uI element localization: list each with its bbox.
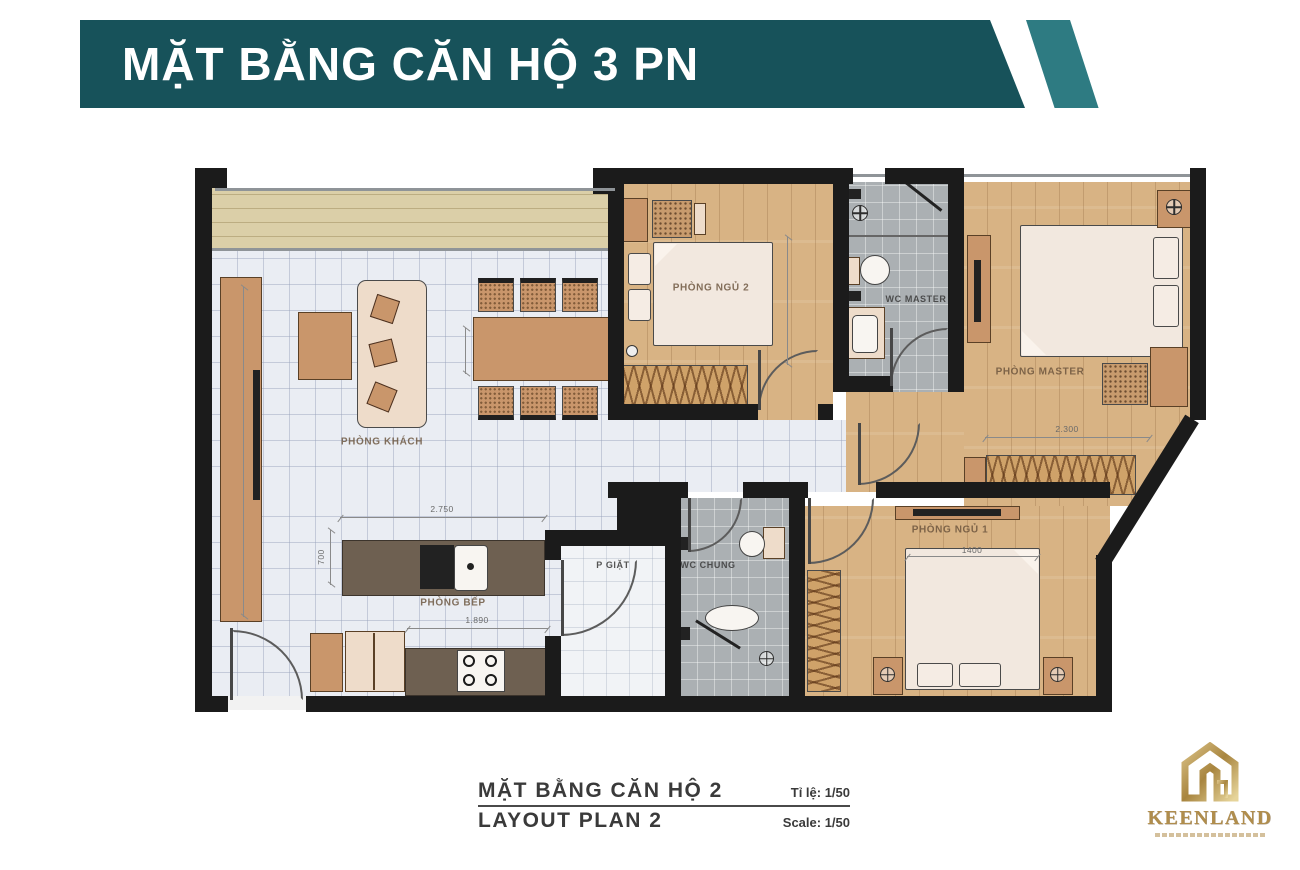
entry-door-leaf bbox=[230, 628, 233, 700]
bedroom2-wardrobe bbox=[622, 365, 748, 407]
master-door-leaf bbox=[858, 423, 861, 485]
floor-drain-icon bbox=[852, 205, 868, 221]
wall bbox=[833, 168, 849, 392]
dimension-line bbox=[243, 287, 244, 617]
wc-master-door-leaf bbox=[890, 328, 893, 386]
headboard-panel bbox=[694, 203, 706, 235]
burner bbox=[485, 655, 497, 667]
lamp bbox=[626, 345, 638, 357]
washbasin bbox=[852, 315, 878, 353]
room-label-kitchen: PHÒNG BẾP bbox=[420, 598, 485, 609]
laundry-door-leaf bbox=[561, 560, 564, 636]
room-label-laundry: P GIẶT bbox=[596, 560, 629, 570]
blanket-fold bbox=[1014, 550, 1038, 574]
dimension-line bbox=[330, 530, 331, 585]
wall bbox=[789, 482, 805, 696]
balcony-floor bbox=[212, 188, 615, 250]
room-label-bedroom1: PHÒNG NGỦ 1 bbox=[912, 525, 989, 536]
wall bbox=[665, 482, 681, 696]
wall bbox=[1190, 168, 1206, 420]
wall bbox=[561, 530, 665, 546]
toilet-tank bbox=[763, 527, 785, 559]
wall bbox=[608, 404, 758, 420]
kitchen-cabinet bbox=[310, 633, 343, 692]
wall bbox=[608, 168, 624, 420]
wall bbox=[545, 530, 561, 560]
side-table bbox=[1150, 347, 1188, 407]
wall-fixture bbox=[849, 189, 861, 199]
caption-row-en: LAYOUT PLAN 2 Scale: 1/50 bbox=[478, 807, 850, 833]
wall bbox=[545, 636, 561, 712]
room-label-wc-shared: WC CHUNG bbox=[680, 560, 735, 570]
refrigerator-door-line bbox=[373, 633, 375, 690]
wall bbox=[195, 696, 228, 712]
lamp-icon bbox=[1050, 667, 1065, 682]
wall bbox=[948, 168, 964, 392]
blanket-fold bbox=[655, 244, 677, 266]
dimension-line bbox=[340, 517, 545, 518]
toilet-bowl bbox=[860, 255, 890, 285]
dining-table bbox=[473, 317, 610, 381]
dimension-value: 700 bbox=[316, 549, 326, 564]
kitchen-sink-drainer bbox=[420, 545, 454, 589]
dimension-line bbox=[407, 628, 548, 629]
dimension-line bbox=[787, 237, 788, 365]
balcony-sliding-door bbox=[212, 248, 608, 251]
burner bbox=[485, 674, 497, 686]
dining-chair bbox=[562, 278, 598, 312]
pouf bbox=[1102, 363, 1148, 405]
storage-ottoman bbox=[652, 200, 692, 238]
window bbox=[964, 174, 1190, 177]
burner bbox=[463, 655, 475, 667]
caption-scale-vi: Tỉ lệ: 1/50 bbox=[791, 785, 850, 800]
page: MẶT BẰNG CĂN HỘ 3 PN bbox=[0, 0, 1300, 870]
brand-name: KEENLAND bbox=[1142, 807, 1278, 830]
dimension-line bbox=[465, 328, 466, 374]
wall bbox=[876, 482, 1110, 498]
pillow bbox=[959, 663, 1001, 687]
refrigerator bbox=[345, 631, 405, 692]
dining-chair bbox=[562, 386, 598, 420]
wall bbox=[624, 168, 853, 184]
shower-partition bbox=[849, 235, 948, 237]
blanket-fold bbox=[1022, 331, 1046, 355]
burner bbox=[463, 674, 475, 686]
bedroom1-door-leaf bbox=[808, 498, 811, 564]
dimension-value: 2.750 bbox=[430, 504, 453, 514]
dining-chair bbox=[478, 278, 514, 312]
pillow bbox=[628, 289, 651, 321]
coffee-table bbox=[298, 312, 352, 380]
wc-shared-door-leaf bbox=[688, 498, 691, 552]
dimension-value: 2.300 bbox=[1055, 424, 1078, 434]
master-tv-screen bbox=[974, 260, 981, 322]
pillow bbox=[917, 663, 953, 687]
house-icon bbox=[1179, 789, 1241, 806]
room-label-master: PHÒNG MASTER bbox=[996, 367, 1085, 378]
room-label-living: PHÒNG KHÁCH bbox=[341, 437, 423, 448]
lamp-icon bbox=[880, 667, 895, 682]
sink-drain bbox=[467, 563, 474, 570]
dimension-value: 1400 bbox=[962, 545, 983, 555]
dimension-line bbox=[907, 556, 1038, 557]
dining-chair bbox=[478, 386, 514, 420]
tv-screen bbox=[253, 370, 260, 500]
bedroom1-tv-screen bbox=[913, 509, 1001, 516]
toilet-bowl bbox=[739, 531, 765, 557]
wall bbox=[195, 173, 212, 712]
wall bbox=[885, 168, 948, 184]
brand-logo: KEENLAND bbox=[1142, 742, 1278, 837]
caption-row-vi: MẶT BẰNG CĂN HỘ 2 Tỉ lệ: 1/50 bbox=[478, 779, 850, 807]
wall-fixture bbox=[849, 291, 861, 301]
wall-fixture bbox=[681, 627, 690, 640]
wall bbox=[849, 376, 893, 392]
pillow bbox=[1153, 285, 1179, 327]
dining-chair bbox=[520, 278, 556, 312]
room-label-bedroom2: PHÒNG NGỦ 2 bbox=[673, 283, 750, 294]
lamp-icon bbox=[1166, 199, 1182, 215]
page-title: MẶT BẰNG CĂN HỘ 3 PN bbox=[80, 37, 699, 91]
bedside-shelf bbox=[622, 198, 648, 242]
washbasin bbox=[705, 605, 759, 631]
floor-drain-icon bbox=[759, 651, 774, 666]
caption-scale-en: Scale: 1/50 bbox=[783, 815, 850, 830]
header-banner: MẶT BẰNG CĂN HỘ 3 PN bbox=[80, 20, 1025, 108]
dining-chair bbox=[520, 386, 556, 420]
banner-accent-stripe bbox=[1026, 20, 1099, 108]
dimension-line bbox=[985, 437, 1150, 438]
bedroom1-wardrobe bbox=[807, 570, 841, 692]
pillow bbox=[628, 253, 651, 285]
bedroom2-door-leaf bbox=[758, 350, 761, 410]
wall bbox=[1096, 555, 1112, 712]
dimension-value: 1.890 bbox=[465, 615, 488, 625]
floor-plan: 2.750 700 1.890 2.300 1400 PHÒNG KHÁCH P… bbox=[195, 165, 1211, 715]
room-label-wc-master: WC MASTER bbox=[886, 294, 947, 304]
balcony-railing bbox=[215, 188, 615, 191]
brand-tagline bbox=[1155, 833, 1265, 837]
caption-block: MẶT BẰNG CĂN HỘ 2 Tỉ lệ: 1/50 LAYOUT PLA… bbox=[478, 779, 850, 833]
caption-title-en: LAYOUT PLAN 2 bbox=[478, 809, 662, 833]
caption-title-vi: MẶT BẰNG CĂN HỘ 2 bbox=[478, 779, 723, 803]
window bbox=[853, 174, 885, 177]
wall bbox=[818, 404, 833, 420]
pillow bbox=[1153, 237, 1179, 279]
wall bbox=[306, 696, 1112, 712]
wall bbox=[195, 168, 227, 188]
